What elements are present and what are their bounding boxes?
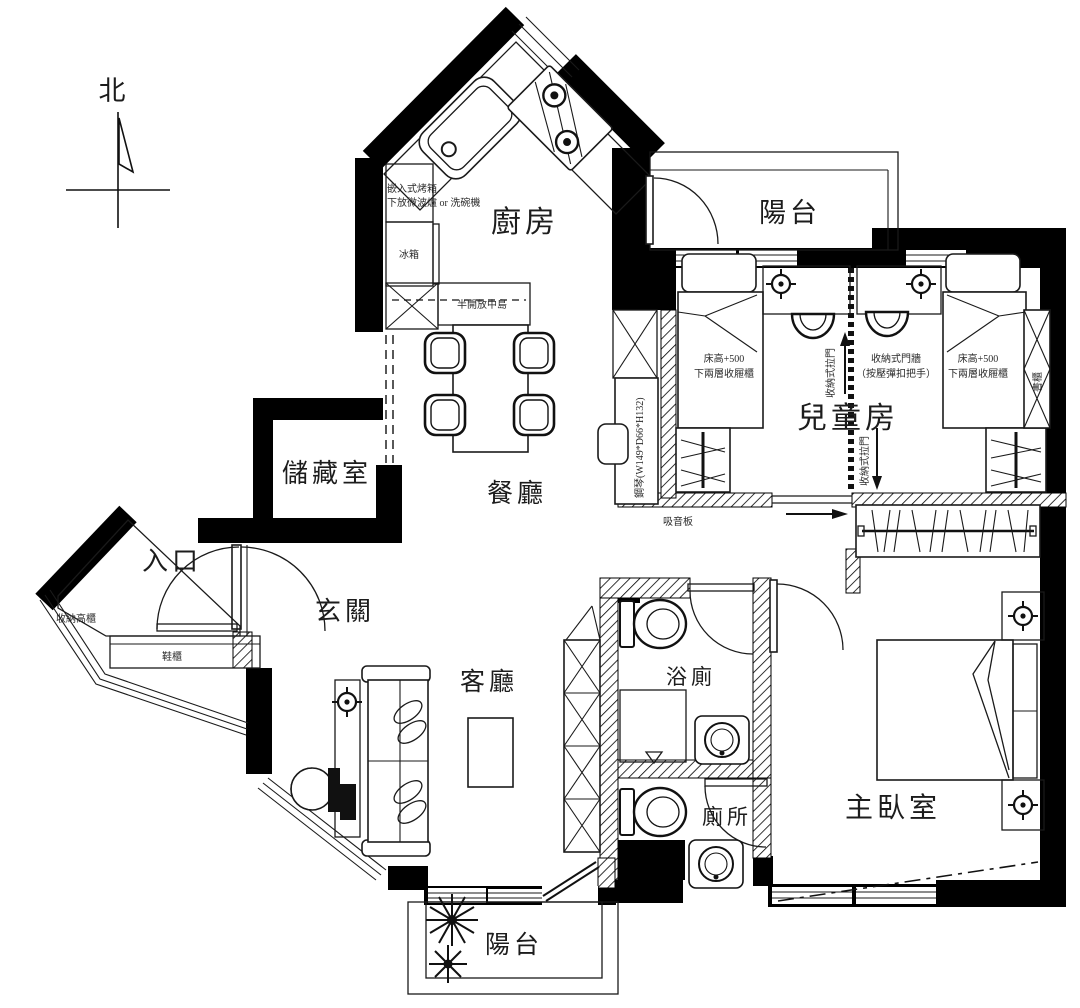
plant-icon (426, 894, 478, 983)
balcony-door-leaf (646, 176, 653, 244)
piano-chair (598, 424, 628, 464)
label-storage-room: 儲藏室 (282, 459, 372, 488)
kitchen-opening-dashed (386, 335, 393, 463)
label-living: 客廳 (460, 668, 518, 696)
note-bed-height-left: 床高+500 (704, 352, 745, 365)
sliding-arrow-right (786, 509, 848, 519)
note-oven-2: 下放微波爐 or 洗碗機 (387, 196, 480, 209)
sink-icon (689, 840, 743, 888)
label-kids-room: 兒童房 (797, 402, 899, 435)
note-fridge: 冰箱 (399, 248, 419, 261)
label-kitchen: 廚房 (491, 206, 559, 239)
foyer-bay-windows (40, 590, 386, 880)
toilet-icon (620, 788, 686, 836)
master-door (770, 580, 843, 652)
kids-bed-right (943, 254, 1026, 428)
label-bathroom: 浴廁 (666, 665, 716, 689)
label-dining: 餐廳 (487, 479, 547, 508)
toilet-icon (620, 600, 686, 648)
note-door-wall-1: 收納式門牆 (871, 352, 921, 365)
tall-cabinet-column (564, 606, 600, 852)
dining-chair (514, 333, 554, 373)
note-bookcase: 書櫃 (1031, 372, 1044, 392)
north-arrow-icon (119, 118, 133, 172)
living-south-window-door (428, 862, 599, 905)
label-balcony-bottom: 陽台 (485, 931, 543, 959)
clothes-rack-left (676, 428, 730, 492)
dining-set (425, 325, 554, 452)
lamp-icon (1008, 601, 1038, 631)
corridor (770, 496, 852, 652)
sofa (362, 666, 430, 856)
label-balcony-top: 陽台 (759, 198, 821, 228)
master-wardrobe (856, 505, 1040, 557)
kids-bed-left (678, 254, 763, 428)
sliding-arrow-down (872, 428, 882, 490)
note-shoe-cabinet: 鞋櫃 (162, 650, 182, 663)
floor-plan: 北 廚房 陽台 兒童房 儲藏室 餐廳 入口 玄關 客廳 浴廁 廁所 主臥室 陽台… (0, 0, 1080, 1008)
lounge-chair (291, 768, 340, 812)
sink-icon (695, 716, 749, 764)
master-bed (877, 640, 1037, 780)
entrance-door-leaf (232, 545, 241, 629)
coffee-table (468, 718, 513, 787)
note-bed-drawers-left: 下兩層收屜櫃 (694, 367, 754, 380)
note-sliding-door-left: 收納式拉門 (824, 348, 837, 398)
master-bedroom (778, 505, 1044, 901)
note-door-wall-2: （按壓彈扣把手） (856, 367, 936, 380)
piano-area (598, 310, 658, 504)
note-tall-cabinet: 收納高櫃 (56, 612, 96, 625)
note-oven-1: 嵌入式烤箱 (387, 182, 437, 195)
label-toilet: 廁所 (702, 805, 752, 829)
lamp-icon (906, 269, 936, 299)
clothes-rack-right (986, 428, 1046, 492)
dining-chair (514, 395, 554, 435)
floor-plan-svg: 北 廚房 陽台 兒童房 儲藏室 餐廳 入口 玄關 客廳 浴廁 廁所 主臥室 陽台… (0, 0, 1080, 1008)
bath-door (688, 584, 754, 654)
note-piano: 鋼琴(W149*D66*H132) (633, 397, 646, 498)
desk-chair (866, 312, 908, 336)
compass-label: 北 (99, 76, 126, 106)
note-sound-board: 吸音板 (663, 515, 693, 528)
label-master-bedroom: 主臥室 (845, 792, 941, 824)
dining-chair (425, 395, 465, 435)
lamp-icon (766, 269, 796, 299)
note-island: 半開放中島 (457, 298, 507, 311)
shower (620, 690, 686, 763)
lamp-icon (332, 687, 362, 717)
note-bed-drawers-right: 下兩層收屜櫃 (948, 367, 1008, 380)
compass (66, 112, 170, 228)
label-foyer: 玄關 (315, 597, 375, 626)
note-bed-height-right: 床高+500 (958, 352, 999, 365)
dining-chair (425, 333, 465, 373)
note-sliding-door-right: 收納式拉門 (858, 436, 871, 486)
label-entrance: 入口 (142, 547, 202, 576)
desk-chair (792, 314, 834, 338)
lamp-icon (1008, 790, 1038, 820)
bookcase (1024, 310, 1050, 428)
